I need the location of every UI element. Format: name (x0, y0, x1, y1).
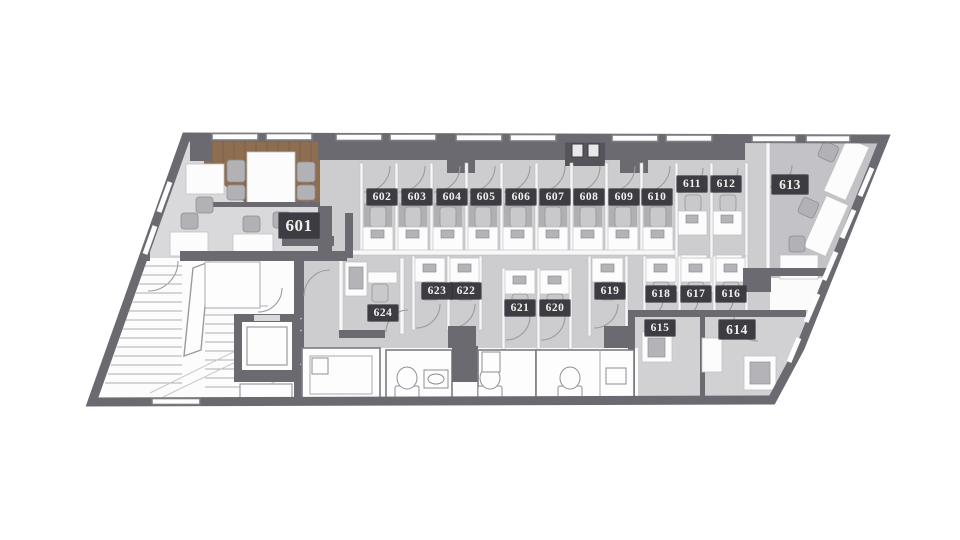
floor-plan-drawing (0, 0, 960, 540)
floor-plan-canvas: 601 602 603 604 605 606 607 608 609 610 … (0, 0, 960, 540)
room-label-623: 623 (422, 283, 452, 299)
room-label-616: 616 (716, 286, 746, 302)
sink-icon (482, 352, 500, 372)
meeting-table-icon (247, 152, 295, 204)
room-label-618: 618 (646, 286, 676, 302)
room-label-611: 611 (677, 176, 707, 192)
room-label-604: 604 (437, 189, 467, 205)
room-label-606: 606 (506, 189, 536, 205)
elevator (234, 314, 300, 400)
room-label-614: 614 (719, 320, 755, 339)
room-label-620: 620 (540, 300, 570, 316)
desk-icon (186, 164, 224, 194)
sink-icon (312, 358, 328, 374)
room-label-615: 615 (645, 320, 675, 336)
room-label-608: 608 (574, 189, 604, 205)
toilet-icon (558, 367, 582, 398)
lounge-chair-icon (297, 185, 315, 200)
room-label-605: 605 (471, 189, 501, 205)
sink-icon (606, 368, 626, 384)
lounge-chair-icon (227, 160, 245, 182)
room-label-621: 621 (505, 300, 535, 316)
room-label-610: 610 (642, 189, 672, 205)
toilet-icon (395, 367, 419, 398)
lounge-chair-icon (297, 162, 315, 182)
room-label-617: 617 (681, 286, 711, 302)
room-label-602: 602 (367, 189, 397, 205)
lounge-chair-icon (227, 185, 245, 200)
room-label-624: 624 (368, 305, 398, 321)
room-label-613: 613 (772, 175, 808, 194)
room-label-609: 609 (609, 189, 639, 205)
room-label-607: 607 (540, 189, 570, 205)
room-label-622: 622 (451, 283, 481, 299)
room-label-619: 619 (595, 283, 625, 299)
room-label-601: 601 (279, 213, 319, 238)
room-label-603: 603 (402, 189, 432, 205)
room-label-612: 612 (711, 176, 741, 192)
